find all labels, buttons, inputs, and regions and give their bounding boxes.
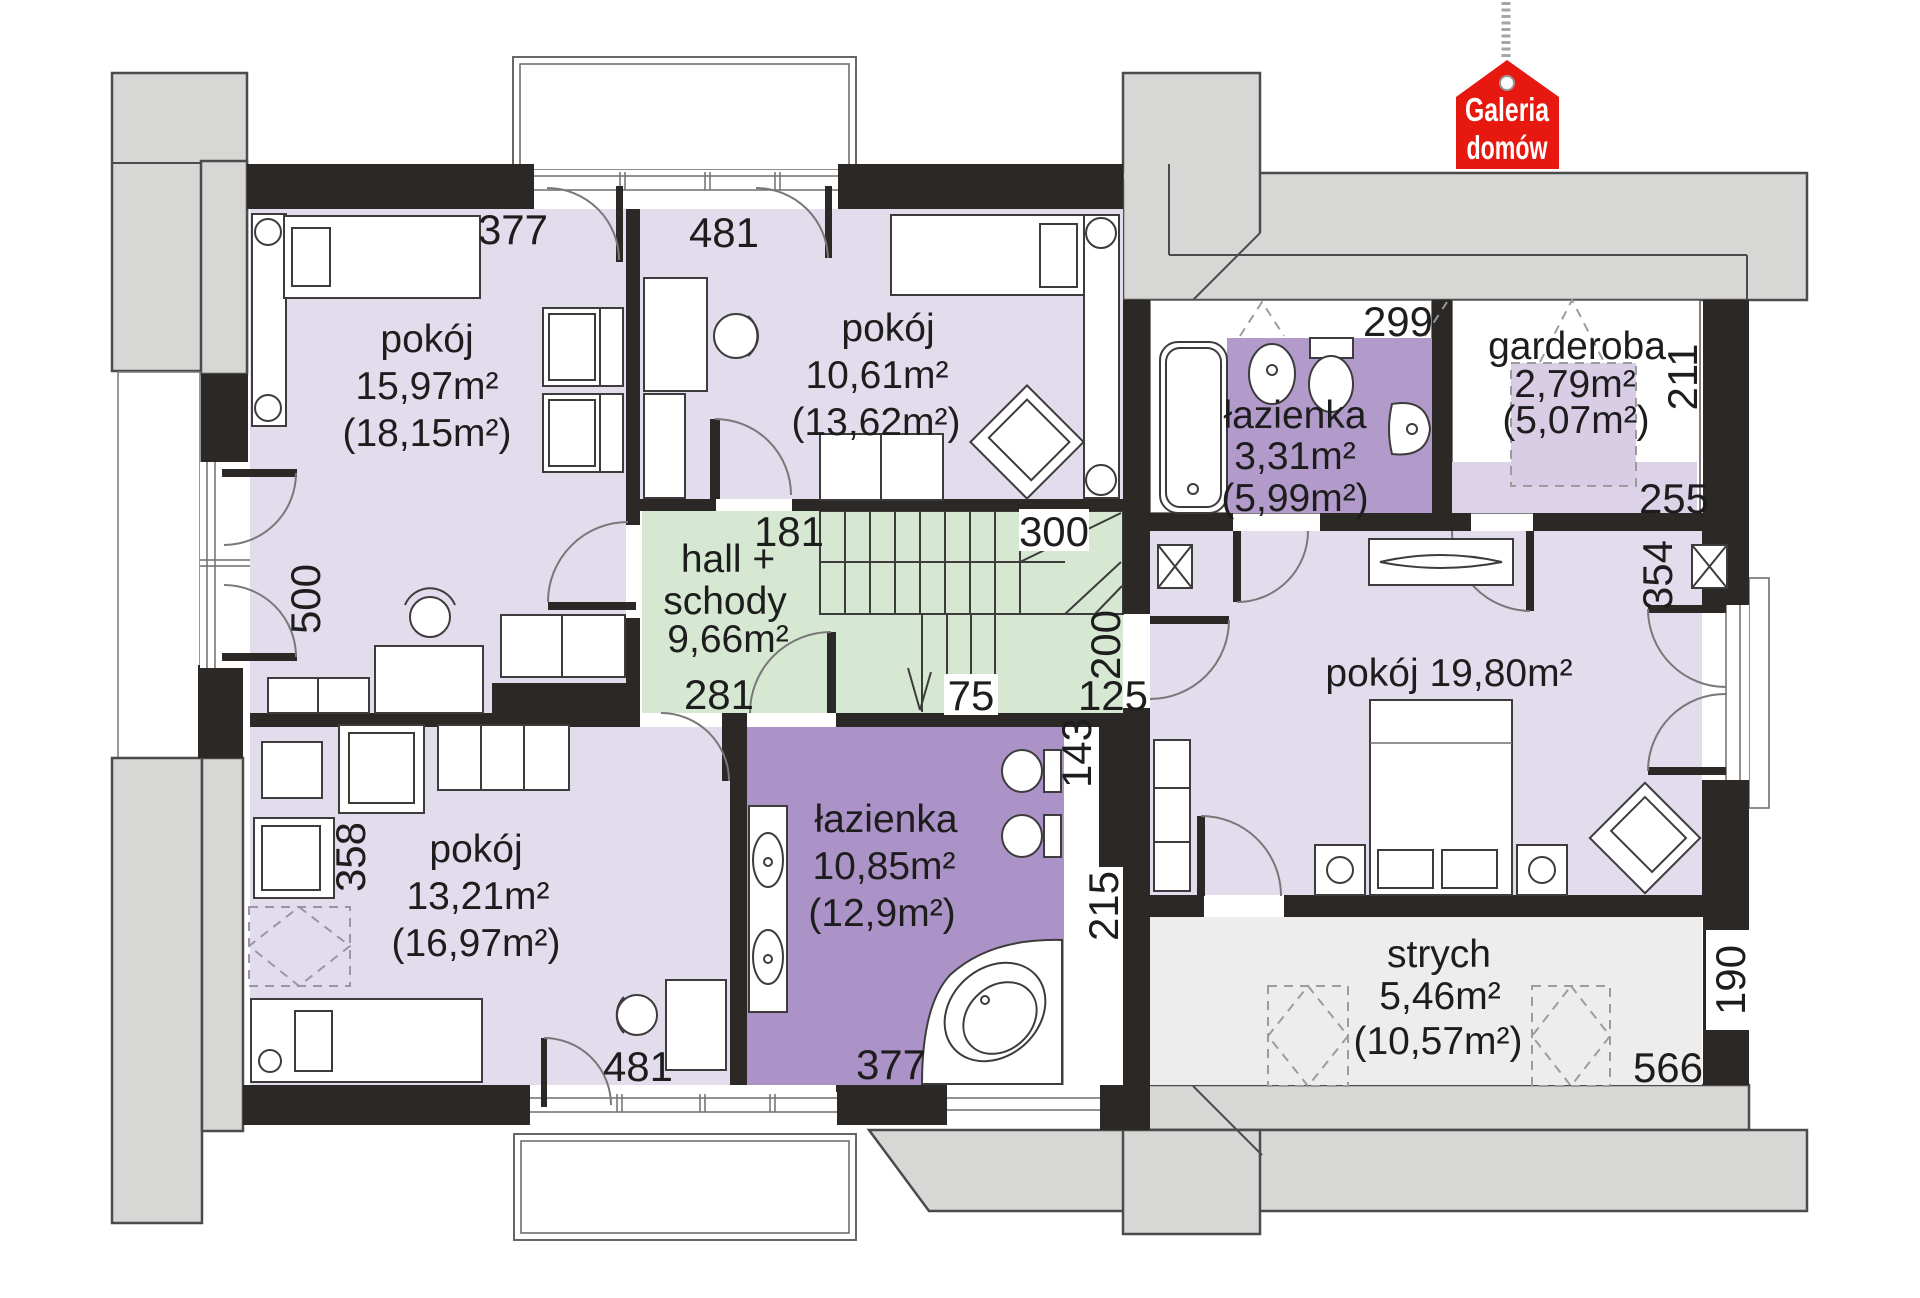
svg-text:strych: strych bbox=[1387, 933, 1491, 976]
svg-text:10,85m²: 10,85m² bbox=[812, 845, 955, 888]
svg-text:(18,15m²): (18,15m²) bbox=[342, 412, 511, 455]
svg-text:13,21m²: 13,21m² bbox=[406, 875, 549, 918]
svg-text:481: 481 bbox=[689, 209, 759, 256]
svg-text:schody: schody bbox=[663, 580, 787, 623]
svg-text:143: 143 bbox=[1053, 718, 1100, 788]
svg-text:354: 354 bbox=[1634, 540, 1681, 610]
svg-text:pokój: pokój bbox=[429, 828, 522, 871]
svg-text:500: 500 bbox=[282, 564, 329, 634]
svg-text:200: 200 bbox=[1082, 610, 1129, 680]
svg-text:domów: domów bbox=[1467, 129, 1548, 166]
svg-text:377: 377 bbox=[478, 206, 548, 253]
svg-text:358: 358 bbox=[327, 822, 374, 892]
svg-text:15,97m²: 15,97m² bbox=[355, 365, 498, 408]
svg-text:377: 377 bbox=[856, 1041, 926, 1088]
svg-text:299: 299 bbox=[1363, 298, 1433, 345]
svg-text:łazienka: łazienka bbox=[1223, 394, 1366, 437]
svg-text:(10,57m²): (10,57m²) bbox=[1353, 1020, 1522, 1063]
svg-text:75: 75 bbox=[948, 672, 995, 719]
svg-text:255: 255 bbox=[1639, 475, 1709, 522]
svg-text:481: 481 bbox=[603, 1043, 673, 1090]
svg-text:181: 181 bbox=[754, 508, 824, 555]
svg-text:(12,9m²): (12,9m²) bbox=[808, 892, 955, 935]
svg-text:300: 300 bbox=[1019, 508, 1089, 555]
svg-text:(5,99m²): (5,99m²) bbox=[1221, 477, 1368, 520]
svg-text:pokój 19,80m²: pokój 19,80m² bbox=[1325, 652, 1572, 695]
svg-text:(13,62m²): (13,62m²) bbox=[791, 401, 960, 444]
svg-text:garderoba: garderoba bbox=[1488, 325, 1666, 368]
svg-text:10,61m²: 10,61m² bbox=[805, 354, 948, 397]
svg-text:pokój: pokój bbox=[380, 318, 473, 361]
svg-text:(5,07m²): (5,07m²) bbox=[1502, 399, 1649, 442]
svg-text:łazienka: łazienka bbox=[814, 798, 957, 841]
svg-text:281: 281 bbox=[684, 671, 754, 718]
svg-text:215: 215 bbox=[1080, 871, 1127, 941]
svg-text:3,31m²: 3,31m² bbox=[1234, 435, 1355, 478]
svg-text:190: 190 bbox=[1707, 945, 1754, 1015]
svg-text:5,46m²: 5,46m² bbox=[1379, 975, 1500, 1018]
svg-text:9,66m²: 9,66m² bbox=[667, 618, 788, 661]
svg-text:211: 211 bbox=[1659, 344, 1706, 411]
svg-text:Galeria: Galeria bbox=[1465, 91, 1549, 128]
svg-text:566: 566 bbox=[1633, 1044, 1703, 1091]
svg-text:(16,97m²): (16,97m²) bbox=[391, 922, 560, 965]
svg-text:pokój: pokój bbox=[841, 307, 934, 350]
